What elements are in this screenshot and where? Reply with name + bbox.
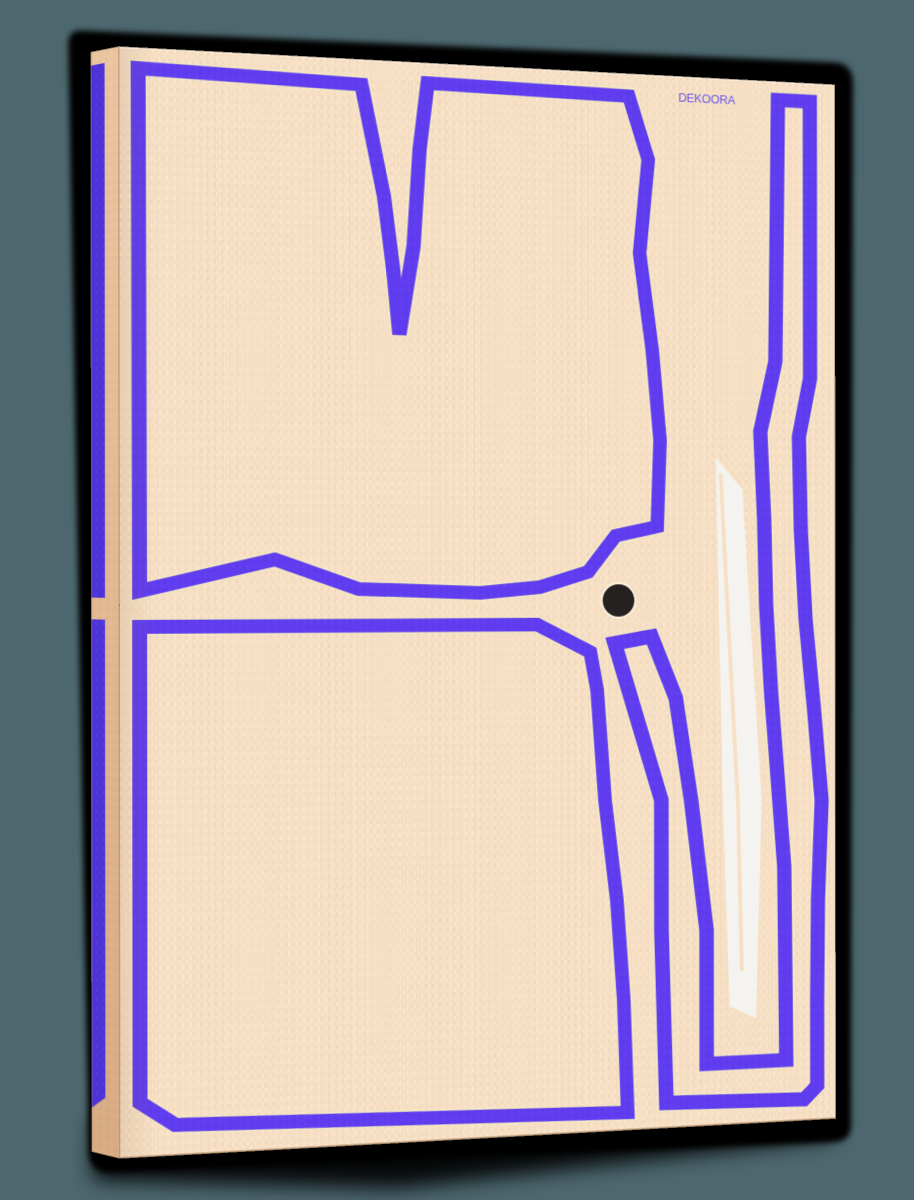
svg-text:DEKOORA: DEKOORA — [678, 91, 736, 107]
